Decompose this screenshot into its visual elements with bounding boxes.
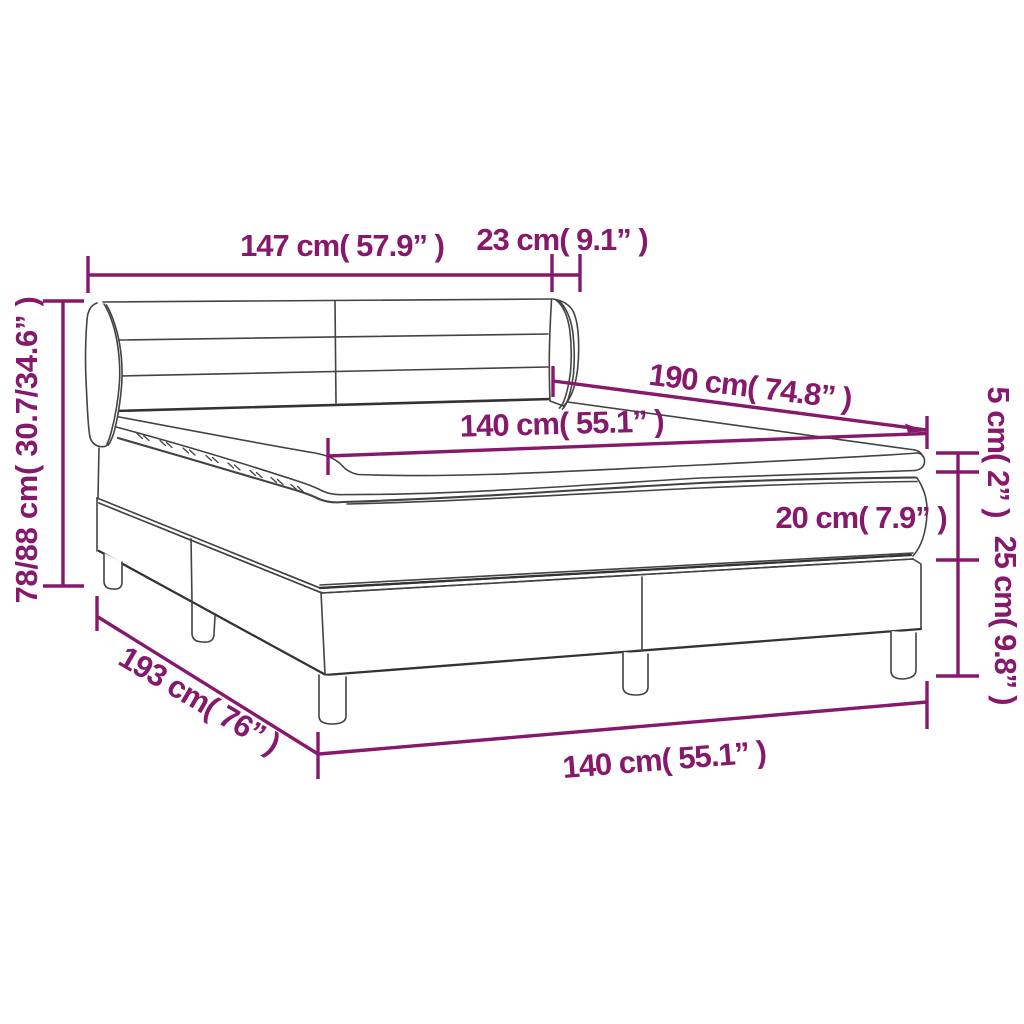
svg-text:5 cm( 2” ): 5 cm( 2” ) [981,386,1016,517]
svg-text:23 cm( 9.1” ): 23 cm( 9.1” ) [476,222,647,257]
svg-text:147 cm( 57.9” ): 147 cm( 57.9” ) [240,228,444,263]
svg-text:140 cm( 55.1” ): 140 cm( 55.1” ) [561,734,767,785]
svg-text:140 cm( 55.1” ): 140 cm( 55.1” ) [459,403,664,443]
svg-text:193 cm( 76” ): 193 cm( 76” ) [113,639,286,761]
svg-text:20 cm( 7.9” ): 20 cm( 7.9” ) [775,500,946,535]
svg-text:25 cm( 9.8” ): 25 cm( 9.8” ) [988,536,1023,705]
svg-text:78/88 cm( 30.7/34.6” ): 78/88 cm( 30.7/34.6” ) [9,296,44,603]
